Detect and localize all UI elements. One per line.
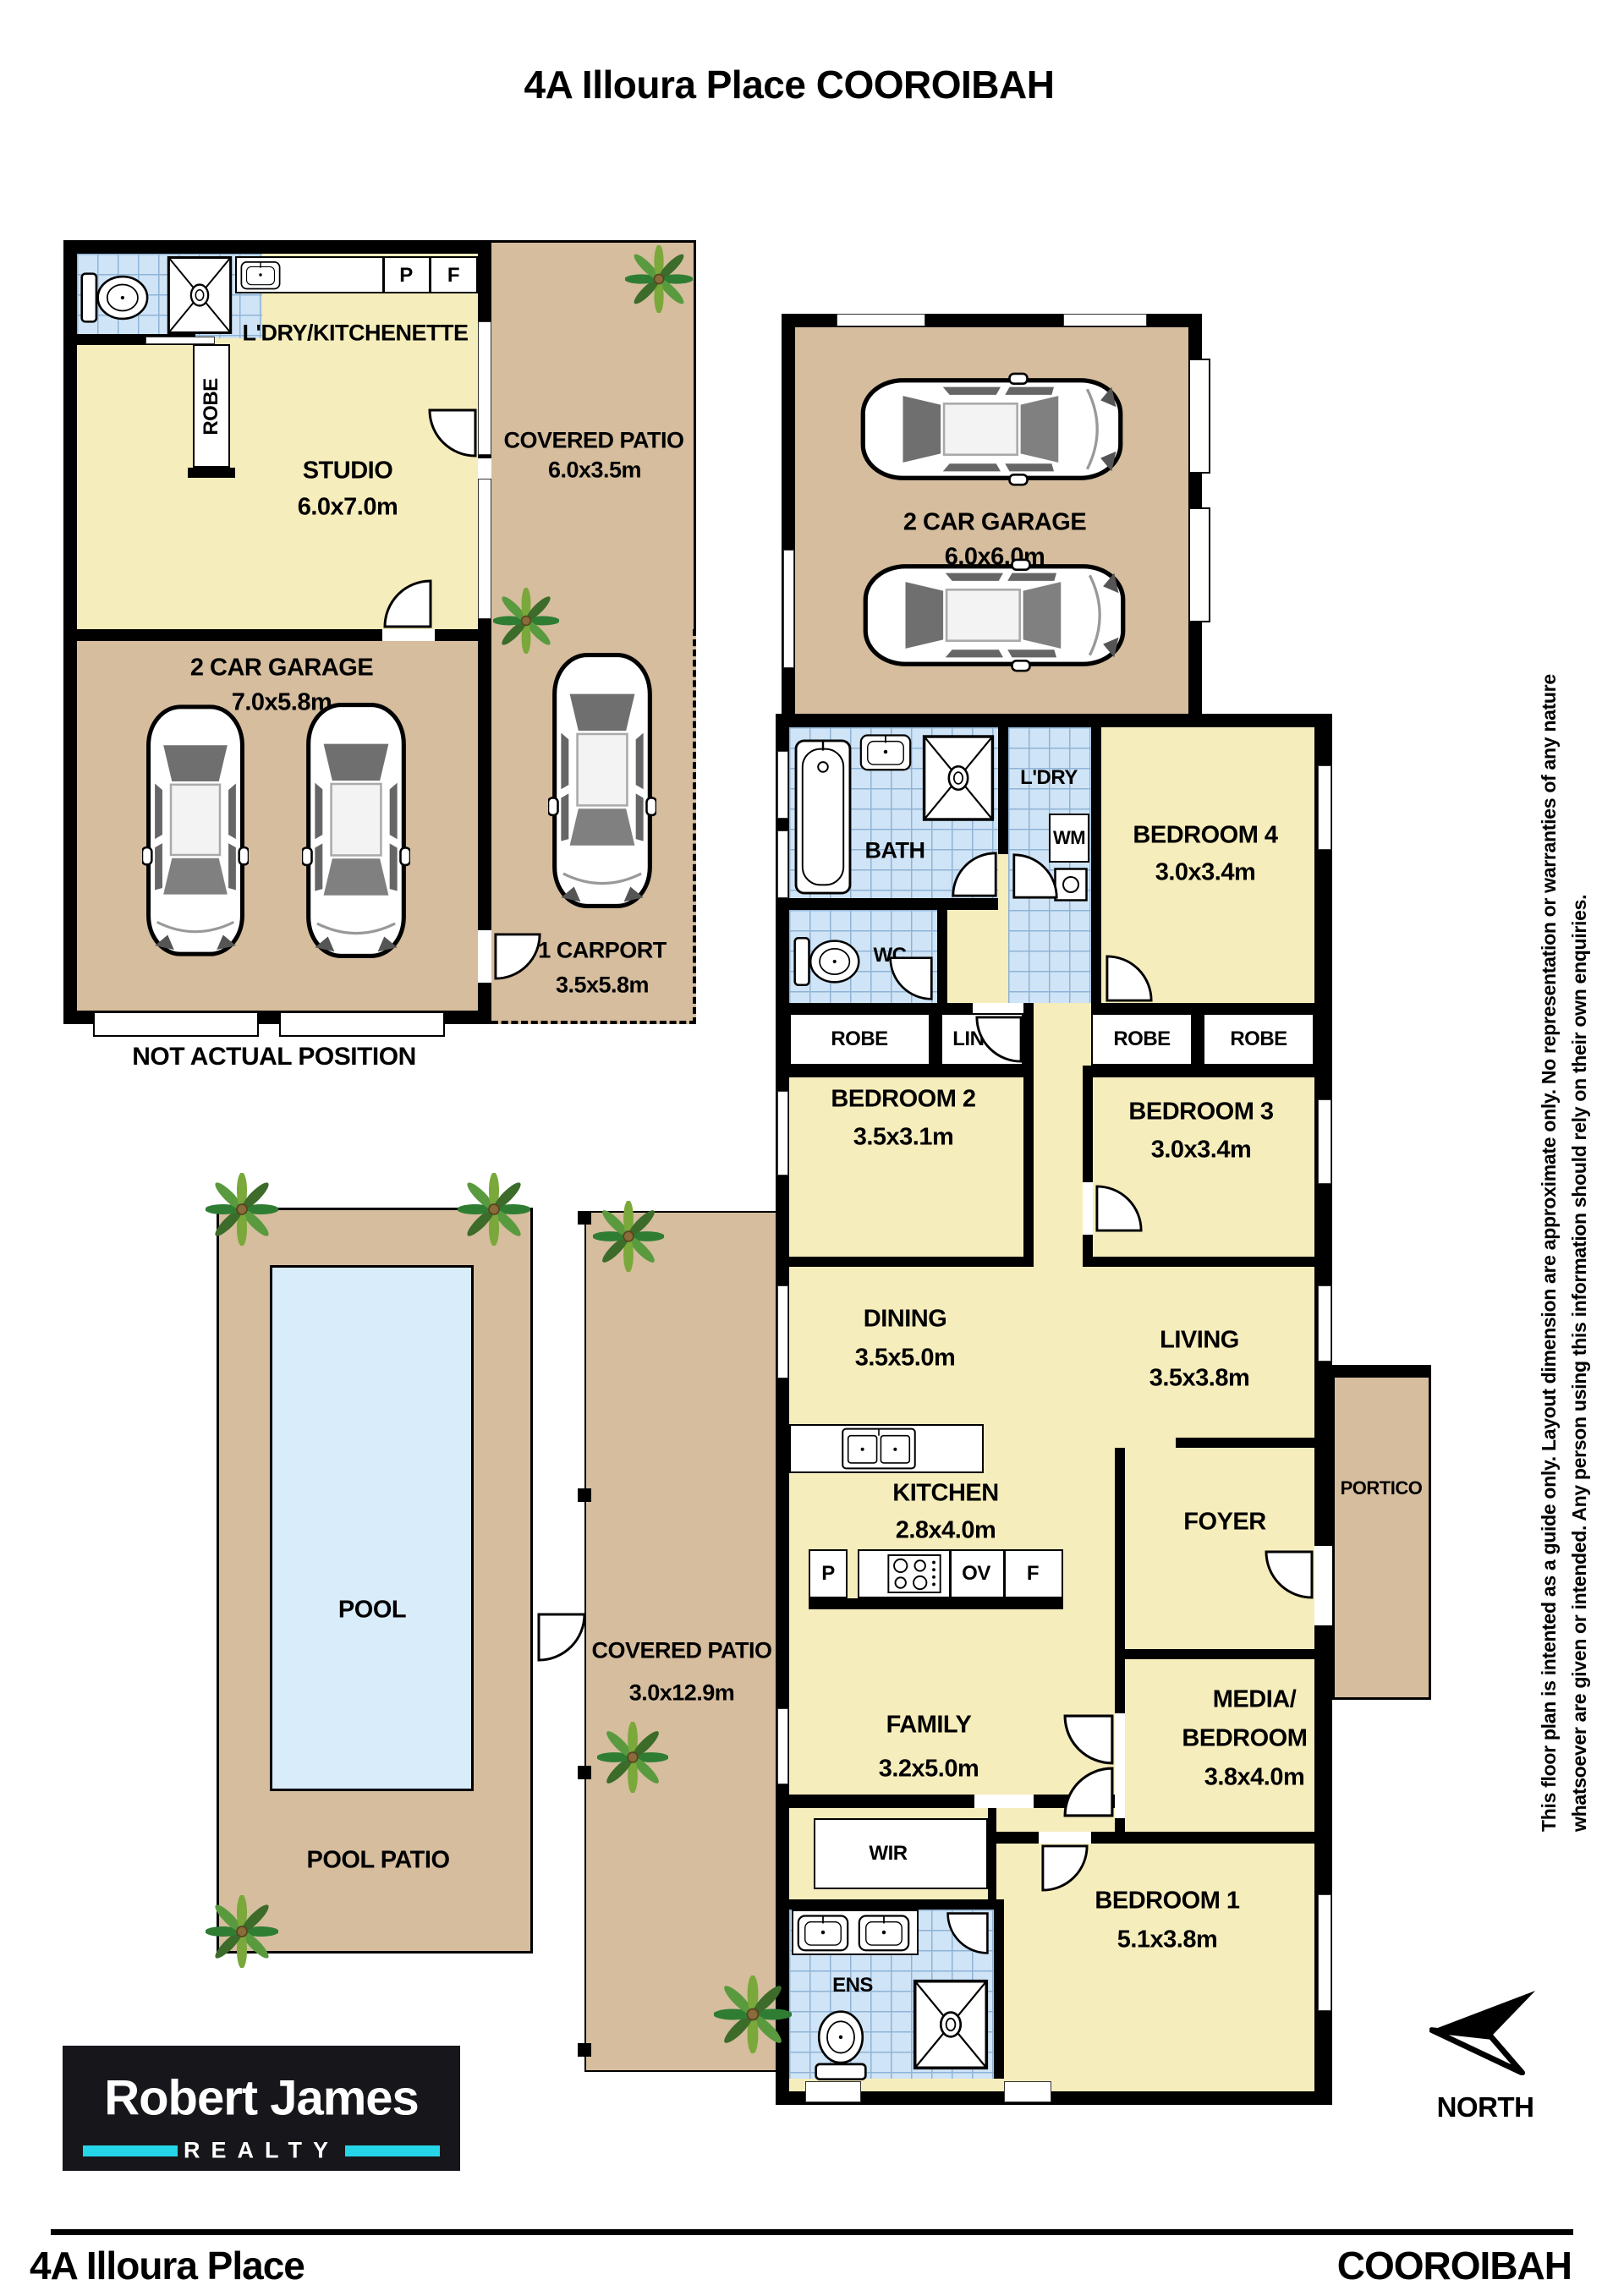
bench-divider <box>1003 1549 1006 1598</box>
sink-icon <box>240 259 281 291</box>
garage-door <box>93 1011 259 1037</box>
agency-subtitle: REALTY <box>184 2138 339 2164</box>
patio-post <box>578 2043 591 2057</box>
family-dims: 3.2x5.0m <box>879 1756 979 1784</box>
window <box>1318 1894 1331 2011</box>
dining-dims: 3.5x5.0m <box>855 1345 956 1373</box>
door-opening <box>1083 1182 1093 1235</box>
agency-name: Robert James <box>104 2070 419 2127</box>
patio-post <box>578 1766 591 1779</box>
bedroom1-label: BEDROOM 1 <box>1095 1888 1239 1915</box>
door-arc <box>536 1612 587 1663</box>
main-garage-label: 2 CAR GARAGE <box>903 509 1086 537</box>
door-arc <box>888 956 934 1001</box>
bedroom4-label: BEDROOM 4 <box>1133 822 1277 850</box>
bench-divider <box>382 256 385 293</box>
studio-bath-shelf <box>145 337 215 344</box>
wall <box>1083 1257 1314 1267</box>
door-arc <box>493 932 542 981</box>
bedroom2-dims: 3.5x3.1m <box>853 1124 954 1152</box>
palm-tree-icon <box>206 1895 278 1968</box>
bench-divider <box>949 1549 952 1598</box>
bedroom2-label: BEDROOM 2 <box>831 1086 975 1114</box>
bath-label: BATH <box>865 838 925 864</box>
window <box>1063 314 1147 326</box>
ensuite-label: ENS <box>832 1974 873 1997</box>
pantry-label: P <box>821 1562 835 1586</box>
laundry-label: L'DRY <box>1020 766 1078 790</box>
shower-icon <box>922 731 995 825</box>
north-arrow-icon <box>1429 1989 1538 2075</box>
wall <box>789 1066 1023 1077</box>
wall <box>809 1598 1063 1609</box>
palm-tree-icon <box>458 1173 530 1246</box>
main-patio-dims: 3.0x12.9m <box>629 1680 735 1707</box>
page-title: 4A Illoura Place COOROIBAH <box>524 62 1055 107</box>
carport-label: 1 CARPORT <box>538 938 667 964</box>
oven-label: OV <box>962 1562 990 1586</box>
wall <box>937 910 947 1003</box>
dryer-icon <box>1054 868 1088 901</box>
door-arc <box>1264 1549 1314 1600</box>
door-opening <box>974 1795 1034 1808</box>
window <box>837 314 925 326</box>
pool-label: POOL <box>338 1597 406 1625</box>
wall <box>930 1013 941 1066</box>
sink-icon <box>795 1913 851 1952</box>
wall <box>998 727 1008 854</box>
wall <box>1115 1649 1314 1659</box>
disclaimer-line-1: This floor plan is intented as a guide o… <box>1534 318 1565 1832</box>
door-arc <box>1062 1713 1115 1766</box>
main-patio-label: COVERED PATIO <box>591 1638 771 1664</box>
footer-address: 4A Illoura Place <box>30 2243 304 2288</box>
wall <box>1091 1066 1314 1077</box>
bedroom3-label: BEDROOM 3 <box>1128 1099 1273 1126</box>
kitchen-label: KITCHEN <box>892 1480 998 1508</box>
palm-tree-icon <box>593 1201 664 1272</box>
door-arc <box>1062 1766 1115 1818</box>
studio-patio-dims: 6.0x3.5m <box>548 458 641 484</box>
studio-patio-label: COVERED PATIO <box>503 428 683 454</box>
living-dims: 3.5x3.8m <box>1149 1365 1250 1393</box>
disclaimer-line-2: whatsoever are given or intended. Any pe… <box>1565 318 1595 1832</box>
robe-label: ROBE <box>831 1027 887 1051</box>
palm-tree-icon <box>625 245 693 313</box>
washing-machine-label: WM <box>1053 827 1085 849</box>
window <box>777 1091 788 1175</box>
window <box>777 751 788 819</box>
footer-divider <box>51 2229 1573 2235</box>
bench-divider <box>429 256 431 293</box>
agency-logo: Robert James REALTY <box>63 2046 460 2171</box>
window <box>478 479 491 619</box>
family-label: FAMILY <box>886 1712 972 1740</box>
door-opening <box>1115 1713 1125 1818</box>
living-label: LIVING <box>1160 1327 1239 1355</box>
media-label-2: BEDROOM 5 <box>1182 1725 1326 1753</box>
studio-pantry-label: P <box>399 264 413 288</box>
wall <box>1176 1438 1314 1448</box>
door-opening <box>478 930 491 983</box>
door-arc <box>1095 1184 1144 1233</box>
window <box>1318 1285 1331 1362</box>
logo-accent-bar <box>345 2145 440 2156</box>
robe-label: ROBE <box>1230 1027 1287 1051</box>
door-arc <box>1012 852 1059 900</box>
dining-label: DINING <box>864 1306 947 1334</box>
car-icon <box>548 640 656 921</box>
toilet-icon <box>793 929 864 995</box>
stove-icon <box>886 1554 942 1593</box>
car-icon <box>861 558 1127 672</box>
car-icon <box>302 699 410 962</box>
door-arc <box>427 408 478 458</box>
door-opening <box>382 629 435 641</box>
window <box>1318 765 1331 850</box>
window <box>777 830 788 898</box>
bathtub-icon <box>793 739 853 895</box>
studio-garage-label: 2 CAR GARAGE <box>190 655 373 682</box>
door-opening <box>1039 1832 1091 1844</box>
logo-accent-bar <box>83 2145 178 2156</box>
robe-label: ROBE <box>1113 1027 1170 1051</box>
wall <box>188 468 235 478</box>
wall <box>789 898 998 910</box>
studio-fridge-label: F <box>447 264 459 288</box>
door-arc <box>1040 1844 1089 1893</box>
pool <box>270 1265 474 1791</box>
palm-tree-icon <box>206 1173 278 1246</box>
window <box>1318 1099 1331 1184</box>
window <box>777 1708 788 1784</box>
ldry-kitchenette-label: L'DRY/KITCHENETTE <box>243 321 469 347</box>
wall <box>994 1899 1004 2079</box>
window <box>777 1285 788 1378</box>
bedroom3-dims: 3.0x3.4m <box>1151 1137 1252 1164</box>
studio-robe-label: ROBE <box>200 378 223 435</box>
window <box>1004 2081 1051 2102</box>
door-arc <box>951 851 998 898</box>
toilet-icon <box>807 2003 875 2084</box>
north-label: NORTH <box>1437 2091 1534 2123</box>
kitchen-sink-icon <box>840 1427 918 1470</box>
foyer-label: FOYER <box>1183 1509 1265 1537</box>
palm-tree-icon <box>597 1722 668 1793</box>
sink-icon <box>856 1913 912 1952</box>
wir-label: WIR <box>869 1842 907 1866</box>
door-arc <box>382 578 433 629</box>
front-door-opening <box>1314 1546 1332 1625</box>
wall <box>1091 727 1101 1003</box>
patio-post <box>578 1211 591 1225</box>
window <box>783 550 794 668</box>
car-icon <box>859 372 1125 486</box>
footer-suburb: COOROIBAH <box>1337 2243 1572 2288</box>
studio-dims: 6.0x7.0m <box>298 494 398 522</box>
garage-door <box>1188 359 1210 474</box>
media-dims: 3.8x4.0m <box>1204 1764 1305 1792</box>
portico-label: PORTICO <box>1341 1477 1423 1499</box>
car-icon <box>142 699 249 962</box>
studio-label: STUDIO <box>303 458 393 485</box>
door-arc <box>974 1015 1023 1064</box>
palm-tree-icon <box>493 588 559 654</box>
window <box>478 321 491 455</box>
kitchen-dims: 2.8x4.0m <box>896 1517 996 1545</box>
not-actual-position-note: NOT ACTUAL POSITION <box>132 1043 416 1071</box>
media-label-1: MEDIA/ <box>1213 1686 1297 1714</box>
door-opening <box>478 458 491 479</box>
toilet-icon <box>80 264 153 332</box>
window <box>805 2081 861 2102</box>
portico <box>1332 1375 1431 1700</box>
floor-plan-page: 4A Illoura Place COOROIBAH COVERED PATIO… <box>0 0 1624 2296</box>
garage-door <box>279 1011 445 1037</box>
wall <box>1091 1003 1314 1013</box>
patio-post <box>578 1488 591 1502</box>
disclaimer-text: This floor plan is intented as a guide o… <box>1534 318 1594 1832</box>
sink-icon <box>859 732 912 771</box>
bedroom1-dims: 5.1x3.8m <box>1117 1926 1218 1954</box>
wall <box>1193 1013 1203 1066</box>
wall <box>1023 1003 1034 1257</box>
pool-patio-label: POOL PATIO <box>306 1847 449 1875</box>
wall <box>988 1808 996 1899</box>
door-arc <box>1105 954 1154 1003</box>
wall <box>789 1257 1034 1267</box>
bedroom4-dims: 3.0x3.4m <box>1155 859 1256 887</box>
shower-icon <box>913 1972 989 2077</box>
carport-dims: 3.5x5.8m <box>556 973 649 999</box>
palm-tree-icon <box>714 1975 792 2053</box>
garage-door <box>1188 507 1210 622</box>
door-opening <box>973 1003 1023 1013</box>
fridge-label: F <box>1027 1562 1039 1586</box>
door-arc <box>946 1911 990 1955</box>
shower-icon <box>167 255 233 335</box>
wall <box>789 1899 1000 1910</box>
